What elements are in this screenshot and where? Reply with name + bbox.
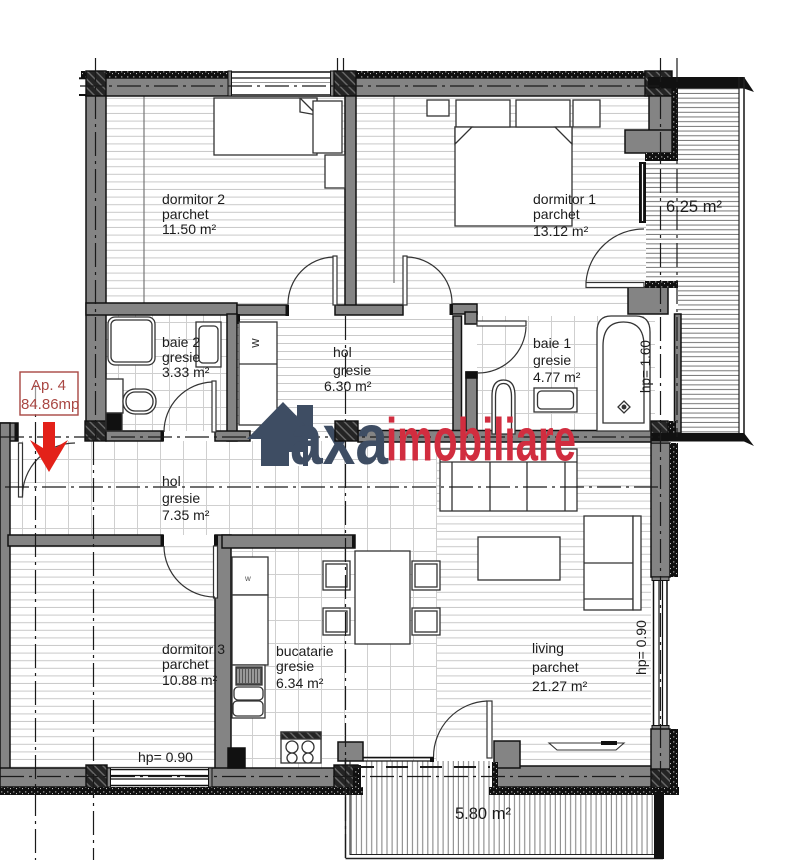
- svg-text:13.12 m²: 13.12 m²: [533, 223, 589, 239]
- svg-text:gresie: gresie: [333, 362, 371, 378]
- svg-text:4.77 m²: 4.77 m²: [533, 369, 581, 385]
- svg-text:hol: hol: [162, 473, 181, 489]
- svg-text:hp= 0.90: hp= 0.90: [633, 620, 649, 675]
- svg-text:parchet: parchet: [162, 656, 209, 672]
- svg-text:gresie: gresie: [162, 490, 200, 506]
- svg-text:dormitor 1: dormitor 1: [533, 191, 596, 207]
- svg-text:7.35 m²: 7.35 m²: [162, 507, 210, 523]
- svg-text:living: living: [532, 640, 564, 656]
- svg-text:hp= 0.90: hp= 0.90: [138, 749, 193, 765]
- svg-text:hol: hol: [333, 344, 352, 360]
- svg-text:hp= 1.60: hp= 1.60: [638, 340, 653, 393]
- svg-text:Ap. 4: Ap. 4: [31, 377, 66, 394]
- svg-text:6.34 m²: 6.34 m²: [276, 675, 324, 691]
- svg-text:baie 2: baie 2: [162, 334, 200, 350]
- svg-text:dormitor 3: dormitor 3: [162, 641, 225, 657]
- svg-text:parchet: parchet: [162, 206, 209, 222]
- svg-text:6.25 m²: 6.25 m²: [666, 198, 722, 216]
- svg-text:gresie: gresie: [162, 349, 200, 365]
- svg-text:parchet: parchet: [532, 659, 579, 675]
- svg-text:21.27 m²: 21.27 m²: [532, 678, 588, 694]
- svg-text:11.50 m²: 11.50 m²: [162, 221, 217, 237]
- svg-text:w: w: [244, 574, 251, 583]
- svg-text:3.33 m²: 3.33 m²: [162, 364, 210, 380]
- svg-text:imobiliare: imobiliare: [386, 407, 576, 474]
- svg-text:parchet: parchet: [533, 206, 580, 222]
- svg-text:gresie: gresie: [276, 658, 314, 674]
- svg-text:w: w: [247, 338, 262, 349]
- svg-text:bucatarie: bucatarie: [276, 643, 334, 659]
- svg-text:dormitor 2: dormitor 2: [162, 191, 225, 207]
- svg-text:84.86mp: 84.86mp: [21, 396, 79, 413]
- svg-text:5.80 m²: 5.80 m²: [455, 805, 511, 823]
- svg-text:gresie: gresie: [533, 352, 571, 368]
- svg-text:baie 1: baie 1: [533, 335, 571, 351]
- svg-text:6.30 m²: 6.30 m²: [324, 378, 372, 394]
- svg-text:10.88 m²: 10.88 m²: [162, 672, 218, 688]
